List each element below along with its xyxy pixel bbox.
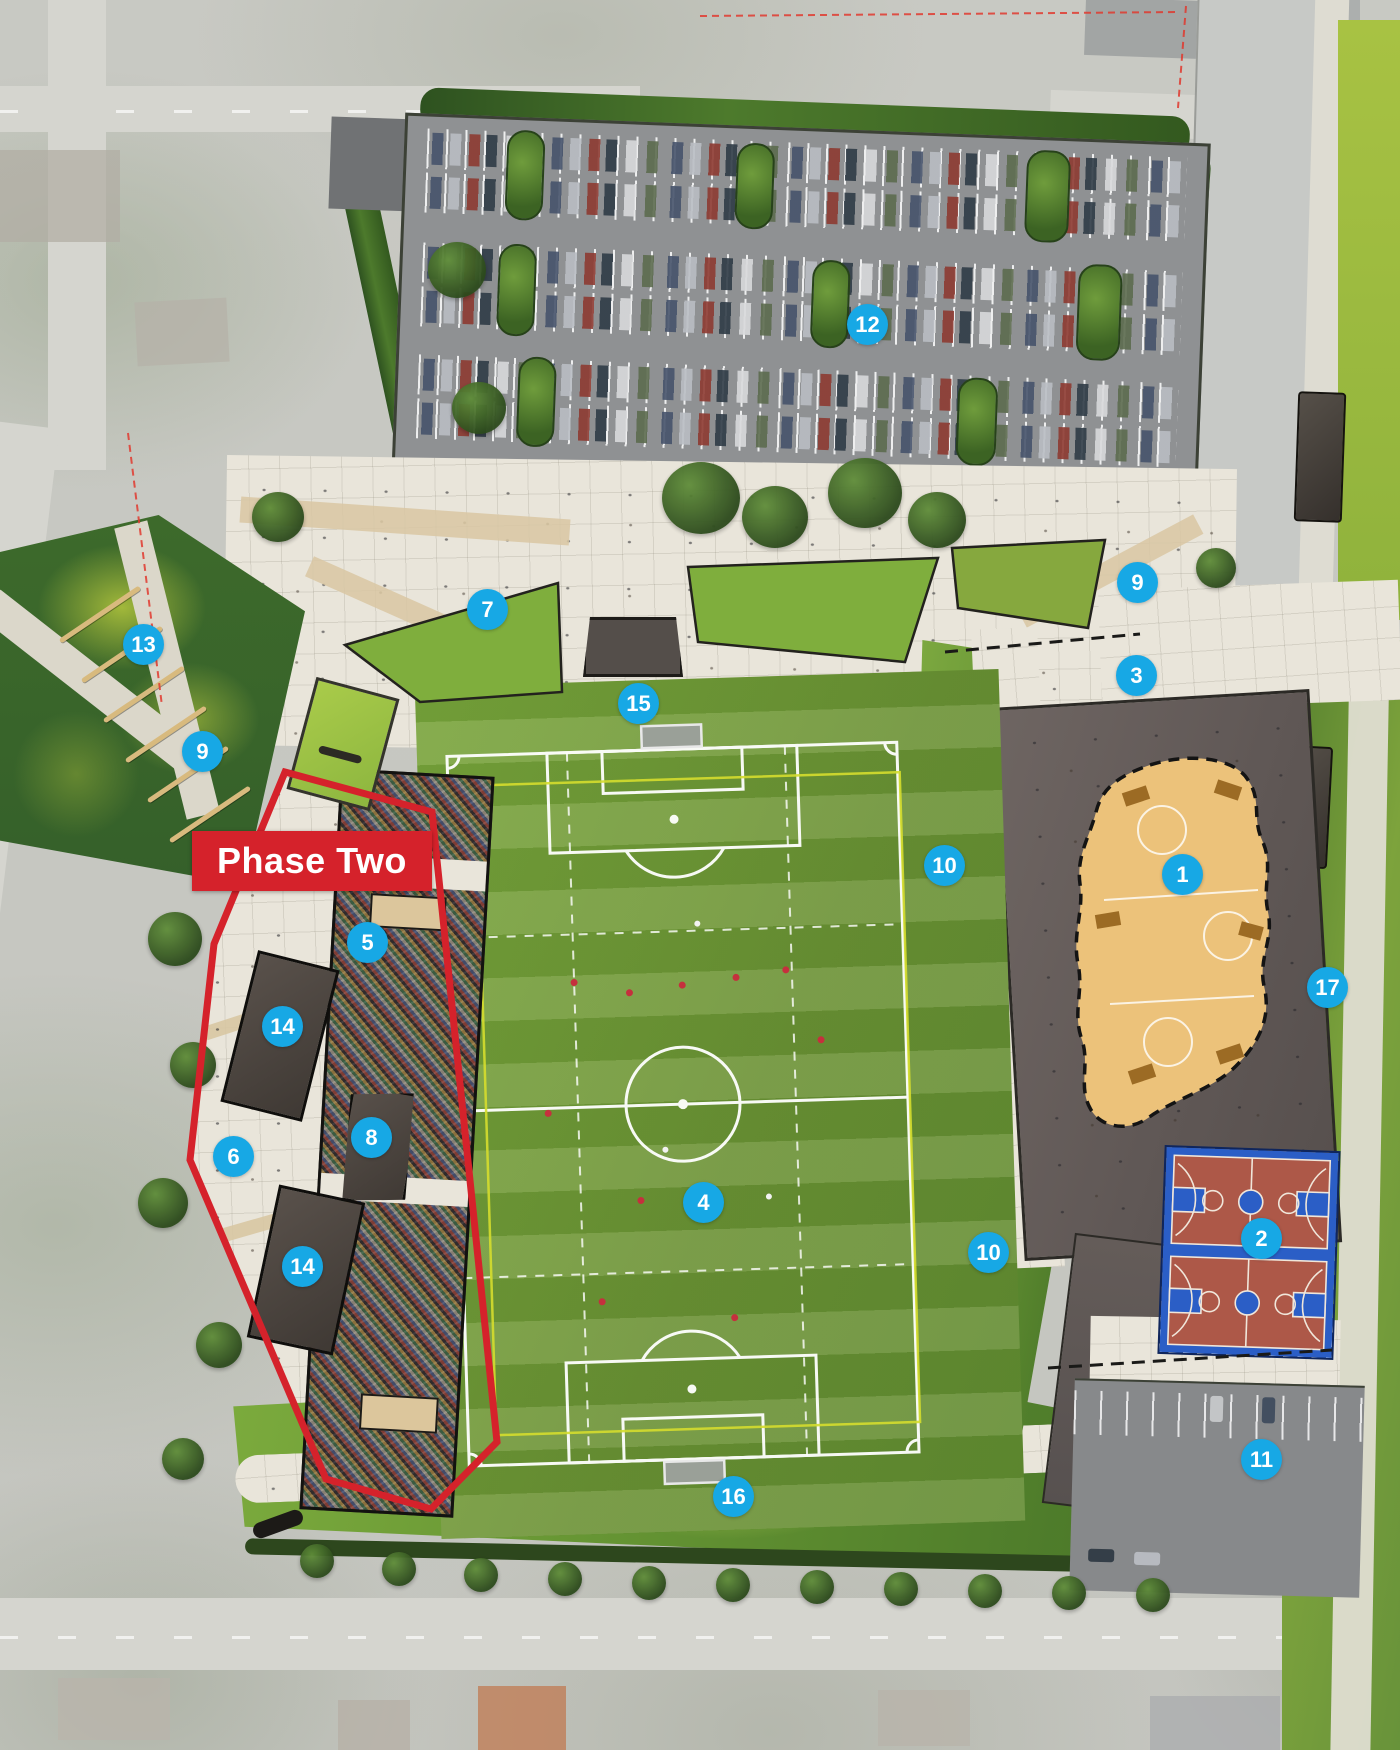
- street-tree: [968, 1574, 1002, 1608]
- street-tree: [800, 1570, 834, 1604]
- car: [1262, 1397, 1276, 1423]
- soccer-field: [415, 669, 1025, 1539]
- parking-island: [496, 243, 538, 336]
- marker-16-south-walk: 16: [713, 1476, 754, 1517]
- tree: [162, 1438, 204, 1480]
- tree: [252, 492, 304, 542]
- phase-two-label: Phase Two: [217, 840, 407, 882]
- parking-island: [516, 356, 557, 447]
- marker-13-left-park: 13: [123, 624, 164, 665]
- tree: [908, 492, 966, 548]
- marker-1-wood-court: 1: [1162, 854, 1203, 895]
- northeast-lawn: [1338, 20, 1400, 620]
- parking-island: [1075, 264, 1123, 362]
- car: [1088, 1549, 1114, 1563]
- marker-9-northeast: 9: [1117, 562, 1158, 603]
- building: [878, 1690, 970, 1746]
- north-parking-lot: [391, 113, 1210, 510]
- car: [1134, 1552, 1160, 1566]
- building: [134, 298, 229, 367]
- marker-7-promenade: 7: [467, 589, 508, 630]
- site-plan-canvas: Phase Two 1 2 3 4 5 6 7 8 9 9 10 10 11 1…: [0, 0, 1400, 1750]
- bus-shelter-north: [1294, 391, 1347, 523]
- marker-8-planter: 8: [351, 1117, 392, 1158]
- parking-island: [810, 259, 851, 348]
- marker-14-planter-south: 14: [282, 1246, 323, 1287]
- phase-two-banner: Phase Two: [192, 831, 432, 891]
- tree: [138, 1178, 188, 1228]
- marker-9-left-park: 9: [182, 731, 223, 772]
- street-tree: [548, 1562, 582, 1596]
- parking-island: [734, 142, 775, 229]
- tree: [452, 382, 506, 434]
- marker-4-field: 4: [683, 1182, 724, 1223]
- marker-12-parking: 12: [847, 304, 888, 345]
- stands-aisle: [359, 1393, 439, 1433]
- building: [338, 1700, 410, 1750]
- street-tree: [884, 1572, 918, 1606]
- marker-2-courts: 2: [1241, 1218, 1282, 1259]
- marker-11-se-parking: 11: [1241, 1439, 1282, 1480]
- street-tree: [1136, 1578, 1170, 1612]
- southeast-parking: [1069, 1378, 1364, 1598]
- building: [0, 150, 120, 242]
- marker-6-promenade: 6: [213, 1136, 254, 1177]
- street-tree: [382, 1552, 416, 1586]
- street-tree: [1052, 1576, 1086, 1610]
- car: [1210, 1396, 1224, 1422]
- tree: [196, 1322, 242, 1368]
- stands-aisle: [369, 893, 447, 931]
- street-tree: [300, 1544, 334, 1578]
- tree: [662, 462, 740, 534]
- marker-15-promenade: 15: [618, 683, 659, 724]
- marker-3-plaza-edge: 3: [1116, 655, 1157, 696]
- tree: [148, 912, 202, 966]
- tree: [170, 1042, 216, 1088]
- red-roof-house: [478, 1686, 566, 1750]
- marker-14-planter-north: 14: [262, 1006, 303, 1047]
- street-tree: [716, 1568, 750, 1602]
- marker-10-lawn-south: 10: [968, 1232, 1009, 1273]
- tree: [428, 242, 486, 298]
- marker-10-lawn-north: 10: [924, 845, 965, 886]
- marker-5-stands: 5: [347, 922, 388, 963]
- street-tree: [632, 1566, 666, 1600]
- parking-island: [504, 130, 545, 221]
- tree: [742, 486, 808, 548]
- swing-set: [318, 745, 363, 764]
- building: [58, 1678, 170, 1740]
- parking-island: [955, 377, 998, 466]
- stage-structure: [583, 617, 683, 677]
- south-street: [0, 1598, 1400, 1670]
- marker-17-corridor: 17: [1307, 967, 1348, 1008]
- parking-island: [1024, 150, 1071, 244]
- building: [1150, 1696, 1280, 1750]
- tree: [828, 458, 902, 528]
- tree: [1196, 548, 1236, 588]
- street-tree: [464, 1558, 498, 1592]
